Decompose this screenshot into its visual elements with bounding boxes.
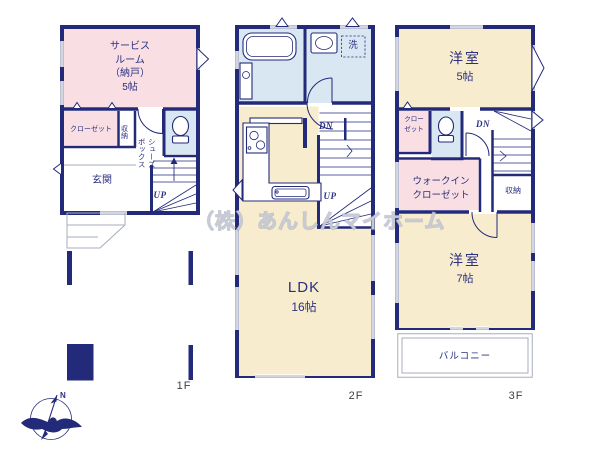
window-marker-top-wash: [346, 18, 359, 27]
window-marker-triangle-3f-room5: [532, 45, 544, 91]
floorplan-canvas: サービス ルーム （納戸） 5帖 クローゼット 収納 シューズ ボックス 玄関 …: [0, 0, 600, 449]
label-laundry: 洗: [340, 40, 366, 53]
label-balcony: バルコニー: [399, 351, 531, 364]
window-marker-top-bath: [276, 18, 288, 27]
kitchen-sink-icon: [272, 187, 309, 200]
label-storage-3f: 収納: [494, 186, 532, 197]
stove-icon: [247, 127, 268, 153]
label-bedroom7: 洋室: [399, 251, 531, 270]
compass: N: [18, 386, 86, 448]
floor-label-1f: 1F: [172, 379, 196, 394]
label-up-2f: UP: [318, 190, 342, 202]
label-up-1f: UP: [148, 189, 172, 201]
label-bedroom7-size: 7帖: [399, 272, 531, 287]
toilet-icon-3f: [439, 117, 454, 142]
stairs-1f: [153, 158, 196, 213]
label-ldk-size: 16帖: [240, 299, 368, 315]
label-dn-3f: DN: [471, 118, 495, 130]
label-wic: ウォークイン クローゼット: [399, 175, 483, 204]
bath-vanity-icon: [240, 63, 252, 99]
entrance-porch: [67, 213, 125, 248]
label-dn-2f: DN: [314, 120, 338, 132]
washbasin-icon: [311, 33, 337, 53]
parking-marks: [67, 251, 193, 381]
floor-label-2f: 2F: [344, 389, 368, 404]
label-entrance: 玄関: [80, 174, 124, 188]
window-marker-triangle-3f-stairs: [532, 111, 543, 129]
label-storage-1f: 収納: [119, 114, 128, 150]
bathtub-icon: [243, 33, 296, 60]
floor-label-3f: 3F: [504, 389, 528, 404]
stairs-3f: [493, 111, 532, 171]
label-closet-3f: クロー ゼット: [397, 115, 431, 135]
toilet-icon-1f: [173, 117, 189, 144]
label-bedroom5-size: 5帖: [399, 70, 531, 85]
compass-north-label: N: [60, 391, 66, 400]
watermark: （株）あんしんマイホーム: [194, 205, 445, 234]
label-closet-1f: クローゼット: [62, 125, 120, 134]
room-bedroom5: [399, 29, 531, 107]
label-shoebox: シューズ ボックス: [136, 122, 156, 184]
label-bedroom5: 洋室: [399, 49, 531, 68]
label-service-room: サービス ルーム （納戸） 5帖: [60, 40, 200, 94]
window-marker-left-1f: [54, 163, 62, 175]
label-ldk: LDK: [240, 278, 368, 298]
compass-bird-icon: [21, 417, 82, 432]
